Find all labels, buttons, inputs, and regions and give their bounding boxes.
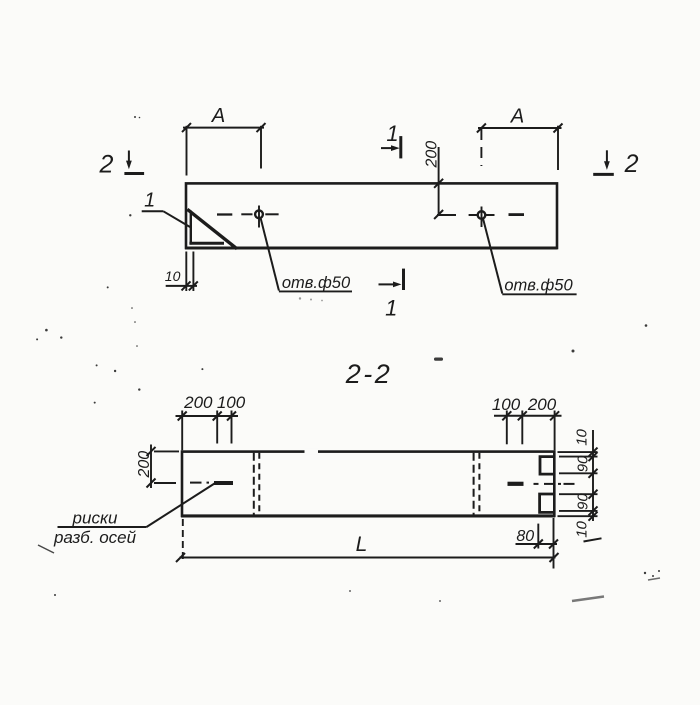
svg-text:разб. осей: разб. осей [53, 528, 137, 547]
svg-text:2: 2 [98, 150, 113, 178]
svg-text:2: 2 [624, 150, 639, 178]
svg-text:риски: риски [72, 509, 118, 528]
svg-text:2-2: 2-2 [345, 359, 393, 389]
svg-text:80: 80 [516, 528, 534, 545]
svg-text:A: A [211, 105, 225, 127]
svg-text:90: 90 [575, 493, 592, 510]
svg-text:1: 1 [144, 190, 155, 212]
svg-text:отв.ф50: отв.ф50 [504, 276, 573, 294]
svg-text:1: 1 [385, 296, 397, 321]
svg-text:10: 10 [573, 428, 590, 445]
svg-text:90: 90 [575, 455, 592, 472]
svg-text:200: 200 [527, 395, 557, 414]
svg-text:200: 200 [424, 141, 441, 169]
svg-text:отв.ф50: отв.ф50 [282, 274, 351, 292]
svg-text:1: 1 [386, 121, 398, 146]
svg-text:200: 200 [183, 393, 213, 412]
svg-text:200: 200 [136, 451, 153, 479]
svg-text:10: 10 [573, 520, 590, 537]
svg-text:L: L [356, 533, 368, 556]
svg-text:A: A [510, 105, 524, 127]
svg-text:100: 100 [492, 395, 521, 414]
svg-text:100: 100 [217, 393, 246, 412]
svg-text:10: 10 [165, 268, 181, 284]
